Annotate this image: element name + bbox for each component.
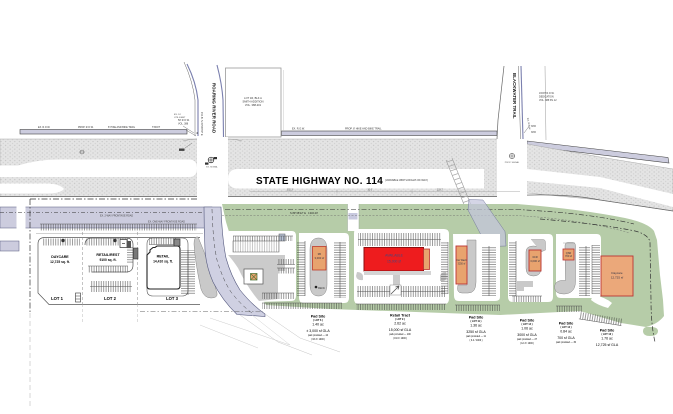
- svg-text:3250 sf: 3250 sf: [458, 264, 466, 266]
- svg-text:3B: 3B: [318, 252, 321, 256]
- svg-text:Pad Site: Pad Site: [600, 329, 615, 333]
- svg-text:park provided — 100: park provided — 100: [389, 333, 411, 336]
- svg-text:700 sf: 700 sf: [565, 254, 572, 258]
- svg-text:park provided — 44: park provided — 44: [308, 334, 329, 337]
- svg-text:LOT 1: LOT 1: [51, 296, 64, 301]
- svg-text:15,000 sf: 15,000 sf: [387, 260, 401, 264]
- svg-text:LOT 1R, BLK A: LOT 1R, BLK A: [244, 96, 262, 100]
- svg-text:1.06 ac: 1.06 ac: [521, 327, 533, 331]
- svg-text:LOT 3: LOT 3: [166, 296, 179, 301]
- svg-text:1.36 ac: 1.36 ac: [470, 324, 482, 328]
- svg-text:S 89°48'12" E 1332.20': S 89°48'12" E 1332.20': [290, 211, 319, 215]
- svg-text:MENU: MENU: [318, 287, 325, 290]
- svg-text:3,000 sf: 3,000 sf: [315, 256, 325, 260]
- svg-text:park provided — 11: park provided — 11: [466, 335, 487, 338]
- svg-text:(VARIABLE WIDTH RIGHT-OF-WAY): (VARIABLE WIDTH RIGHT-OF-WAY): [385, 178, 428, 182]
- svg-text:EX. SIGNAL: EX. SIGNAL: [206, 166, 218, 169]
- svg-text:3250 sf GLA: 3250 sf GLA: [466, 330, 486, 334]
- svg-text:park provided — 27: park provided — 27: [517, 338, 538, 341]
- svg-text:UTIL ESMT: UTIL ESMT: [174, 117, 186, 119]
- svg-text:Pad Site: Pad Site: [311, 315, 326, 319]
- svg-text:9100 sq. ft.: 9100 sq. ft.: [99, 258, 116, 262]
- svg-text:ROARING RIVER ROAD: ROARING RIVER ROAD: [212, 83, 217, 133]
- svg-text:30'R: 30'R: [531, 125, 536, 128]
- svg-text:DAYCARE: DAYCARE: [51, 255, 69, 259]
- svg-text:( 33.3 / 1000 ): ( 33.3 / 1000 ): [311, 339, 326, 341]
- svg-text:PROP. 8' HIKE AND BIKE TRAIL: PROP. 8' HIKE AND BIKE TRAIL: [345, 128, 382, 131]
- svg-text:( 19.6 / 1000 ): ( 19.6 / 1000 ): [393, 338, 408, 340]
- svg-text:3,000 sf: 3,000 sf: [530, 259, 540, 263]
- svg-text:12,725 sf: 12,725 sf: [611, 276, 624, 280]
- svg-text:( LOT 14 ): ( LOT 14 ): [521, 323, 532, 326]
- svg-text:1.40 ac: 1.40 ac: [312, 323, 324, 327]
- svg-text:VOL. 388: VOL. 388: [178, 122, 189, 125]
- svg-text:3CR: 3CR: [532, 255, 537, 259]
- svg-text:8' HIKE AND BIKE TRAIL: 8' HIKE AND BIKE TRAIL: [108, 126, 136, 129]
- svg-text:AVAILABLE: AVAILABLE: [385, 254, 404, 258]
- svg-text:park provided — 30: park provided — 30: [556, 341, 577, 344]
- svg-text:12,725 sq. ft.: 12,725 sq. ft.: [50, 260, 70, 264]
- svg-text:Car Wash: Car Wash: [456, 259, 467, 262]
- svg-text:± 3,000 sf GLA: ± 3,000 sf GLA: [306, 329, 330, 333]
- svg-text:EX. 2-WAY FRONTAGE ROAD: EX. 2-WAY FRONTAGE ROAD: [100, 215, 133, 218]
- svg-text:Pad Site: Pad Site: [520, 319, 535, 323]
- svg-text:STATE HIGHWAY NO. 114: STATE HIGHWAY NO. 114: [256, 176, 383, 187]
- svg-text:12,725 sf GLA: 12,725 sf GLA: [596, 343, 619, 347]
- svg-text:RETAIL: RETAIL: [157, 255, 171, 259]
- svg-text:VOL. 388-201: VOL. 388-201: [245, 103, 262, 107]
- svg-text:EX. 10': EX. 10': [174, 114, 182, 116]
- svg-text:332.3': 332.3': [287, 189, 294, 192]
- svg-text:EX. ONE-WAY FRONTAGE ROAD: EX. ONE-WAY FRONTAGE ROAD: [148, 221, 185, 224]
- svg-text:1.76 ac: 1.76 ac: [601, 337, 613, 341]
- svg-text:( 3.4 / 1000 ): ( 3.4 / 1000 ): [469, 340, 482, 342]
- svg-text:EX. R.O.W.: EX. R.O.W.: [292, 128, 305, 131]
- svg-text:VOL. 388 PG 12: VOL. 388 PG 12: [539, 99, 557, 102]
- svg-text:2.62 ac: 2.62 ac: [394, 322, 406, 326]
- svg-text:( LOT 12 ): ( LOT 12 ): [560, 326, 571, 329]
- svg-text:BLACKWATER TRAIL: BLACKWATER TRAIL: [512, 73, 517, 119]
- svg-text:PROP. SIGNAL: PROP. SIGNAL: [505, 161, 520, 164]
- svg-text:TXDOT: TXDOT: [152, 126, 161, 129]
- svg-text:15,000 sf GLA: 15,000 sf GLA: [389, 328, 412, 332]
- svg-text:30.0': 30.0': [367, 189, 373, 192]
- svg-text:SMITH ADDITION: SMITH ADDITION: [242, 99, 263, 103]
- svg-text:Daycare: Daycare: [611, 271, 623, 275]
- svg-text:P.O.B. N 00'00'00" E: P.O.B. N 00'00'00" E: [200, 112, 204, 136]
- svg-text:700 sf GLA: 700 sf GLA: [557, 336, 575, 340]
- svg-text:RETAIL/REST: RETAIL/REST: [96, 253, 120, 257]
- svg-text:233.7': 233.7': [437, 189, 444, 192]
- svg-text:EX. R.O.W.: EX. R.O.W.: [38, 126, 51, 129]
- svg-text:( LOT 9 ): ( LOT 9 ): [395, 318, 405, 321]
- svg-text:3000 sf GLA: 3000 sf GLA: [517, 333, 537, 337]
- svg-text:( LOT 6 ): ( LOT 6 ): [313, 319, 323, 322]
- svg-text:30'R: 30'R: [531, 131, 536, 134]
- svg-text:( LOT 11 ): ( LOT 11 ): [471, 320, 482, 323]
- svg-text:Pad Site: Pad Site: [559, 322, 574, 326]
- svg-text:0.84 ac: 0.84 ac: [560, 330, 572, 334]
- svg-text:( 12.3 / 1000 ): ( 12.3 / 1000 ): [520, 343, 535, 345]
- svg-text:Retail Tract: Retail Tract: [390, 314, 411, 318]
- svg-text:LOT 2: LOT 2: [104, 296, 117, 301]
- svg-text:( LOT 13 ): ( LOT 13 ): [601, 333, 612, 336]
- svg-text:PROP. R.O.W.: PROP. R.O.W.: [78, 126, 94, 129]
- svg-text:Pad Site: Pad Site: [469, 316, 484, 320]
- svg-text:QSR: QSR: [566, 251, 572, 255]
- svg-text:14,410 sq. ft.: 14,410 sq. ft.: [153, 260, 173, 264]
